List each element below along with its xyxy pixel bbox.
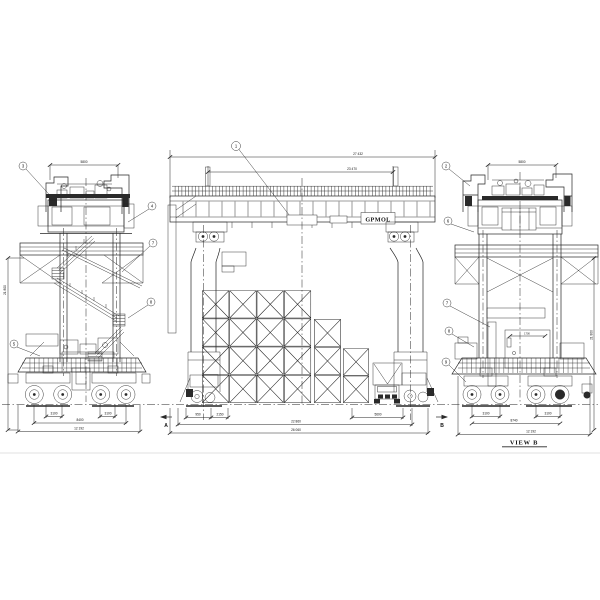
- center-s1-text: 950: [195, 412, 201, 416]
- left-end-truck: [191, 222, 246, 272]
- balloon-right-1: 2: [442, 162, 470, 186]
- right-axle1-text: 3100: [482, 411, 489, 415]
- main-girder: GPMOL: [170, 196, 435, 228]
- balloon-left-r2: 7: [122, 239, 157, 272]
- balloon-left-bottom: 5: [10, 340, 40, 356]
- right-tie-beam: [455, 245, 598, 292]
- right-ladder: [488, 322, 496, 386]
- right-side-view-b: 5800 2 6 7 8 9: [442, 160, 598, 447]
- svg-text:8: 8: [448, 329, 451, 334]
- leg-ladder: [168, 205, 176, 333]
- svg-text:9: 9: [445, 360, 448, 365]
- truck: [373, 363, 402, 404]
- left-side-view: 21 800 5800 3: [3, 160, 157, 433]
- right-top-dim-text: 5800: [518, 160, 525, 164]
- left-wb2-text: 3100: [104, 411, 111, 415]
- section-a-label: A: [164, 423, 168, 429]
- left-wb1-text: 3100: [50, 411, 57, 415]
- balloon-right-2: 6: [444, 217, 474, 232]
- right-guide-block-r: [565, 196, 571, 206]
- center-mid-dim-text: 22 860: [291, 420, 301, 424]
- sill-beam: [18, 342, 146, 372]
- svg-text:VIEW B: VIEW B: [510, 440, 538, 447]
- right-rail-guide-left: [463, 175, 485, 212]
- right-top-dimension: [486, 163, 558, 180]
- gantry-crane-general-arrangement-drawing: 21 800 5800 3: [0, 0, 600, 600]
- svg-text:3: 3: [22, 164, 25, 169]
- right-trolley-machinery: [492, 179, 544, 195]
- brand-plate-text: GPMOL: [365, 216, 390, 223]
- left-base-dim-text: 12 192: [74, 426, 84, 430]
- right-base-dim-text: 12 192: [526, 429, 536, 433]
- section-arrow-b: B: [436, 415, 448, 429]
- right-mid-dim-text: 8740: [510, 418, 517, 422]
- right-rail-guide-right: [546, 174, 572, 212]
- svg-text:5: 5: [13, 342, 16, 347]
- section-b-label: B: [440, 423, 444, 429]
- right-end-truck: [386, 222, 423, 262]
- right-sill-beam: [452, 358, 596, 374]
- center-s2-text: 2150: [216, 412, 223, 416]
- balloon-left-r3: 8: [128, 298, 155, 318]
- right-axle2-text: 3100: [544, 411, 551, 415]
- container-stacks: [202, 291, 368, 403]
- view-b-title: VIEW B: [502, 440, 547, 447]
- left-top-dim-text: 5800: [80, 160, 87, 164]
- left-height-dim-text: 21 800: [3, 285, 7, 295]
- svg-text:7: 7: [152, 241, 155, 246]
- center-outer-dim-text: 27 432: [353, 152, 363, 156]
- center-base-dim-text: 26 060: [291, 428, 301, 432]
- svg-text:8: 8: [150, 300, 153, 305]
- svg-text:7: 7: [446, 301, 449, 306]
- trolley-dark-band: [46, 194, 130, 198]
- svg-text:6: 6: [447, 219, 450, 224]
- front-elevation-view: 27 432 23 470 1 GPMOL: [160, 142, 448, 435]
- left-top-dimension: [48, 163, 120, 180]
- right-height-dimension: [592, 256, 596, 432]
- drawing-canvas: 21 800 5800 3: [0, 0, 600, 600]
- svg-text:4: 4: [151, 204, 154, 209]
- svg-text:2: 2: [445, 164, 448, 169]
- left-mid-dim-text: 8400: [76, 418, 83, 422]
- svg-text:1: 1: [235, 144, 238, 149]
- right-height-dim-text: 21 800: [589, 330, 593, 340]
- center-inner-dim-text: 23 470: [347, 167, 357, 171]
- center-s3-text: 5600: [374, 412, 381, 416]
- balloon-left-r1: 4: [128, 202, 156, 222]
- right-guide-block-l: [465, 196, 472, 206]
- room-dim-text: 1700: [524, 332, 530, 336]
